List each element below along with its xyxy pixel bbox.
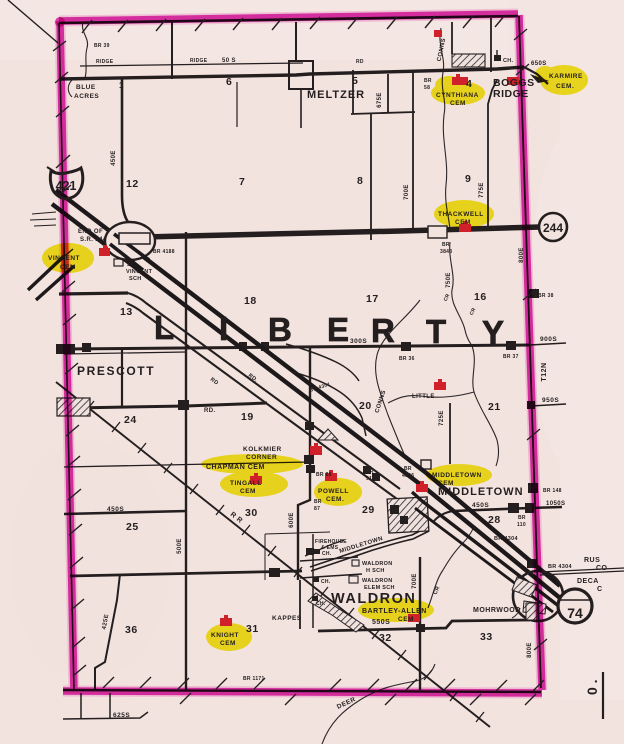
- svg-text:6: 6: [226, 76, 232, 88]
- svg-text:MIDDLETOWN: MIDDLETOWN: [432, 472, 482, 479]
- svg-text:CEM: CEM: [450, 100, 466, 107]
- svg-text:19: 19: [241, 411, 254, 423]
- svg-text:31: 31: [246, 623, 259, 635]
- svg-text:50 S: 50 S: [222, 58, 236, 64]
- svg-text:BR: BR: [404, 466, 412, 472]
- svg-text:8: 8: [357, 175, 363, 187]
- svg-text:300S: 300S: [350, 338, 367, 345]
- svg-text:800E: 800E: [527, 642, 533, 658]
- svg-text:BR 4304: BR 4304: [548, 564, 572, 570]
- svg-text:4306: 4306: [402, 473, 414, 479]
- svg-text:CEM.: CEM.: [326, 496, 344, 503]
- svg-text:THACKWELL: THACKWELL: [438, 211, 484, 218]
- svg-text:CH.: CH.: [316, 601, 326, 607]
- svg-text:CHAPMAN CEM: CHAPMAN CEM: [206, 464, 265, 471]
- svg-text:110: 110: [517, 522, 526, 528]
- svg-text:E: E: [327, 311, 349, 348]
- svg-text:WALDRON: WALDRON: [362, 578, 393, 584]
- svg-text:RIDGE: RIDGE: [493, 88, 529, 100]
- svg-text:RD: RD: [356, 59, 364, 65]
- svg-text:BR 148: BR 148: [543, 488, 562, 494]
- svg-text:WALDRON: WALDRON: [362, 561, 393, 567]
- svg-text:ST: ST: [127, 262, 135, 268]
- svg-text:29: 29: [362, 504, 375, 516]
- svg-text:CEM: CEM: [220, 640, 236, 647]
- svg-text:BR 4188: BR 4188: [153, 249, 175, 255]
- svg-text:700E: 700E: [412, 573, 418, 589]
- svg-text:550S: 550S: [372, 619, 390, 626]
- svg-text:87: 87: [314, 506, 320, 512]
- svg-text:25: 25: [126, 521, 139, 533]
- svg-text:CH.: CH.: [322, 551, 332, 557]
- svg-text:675E: 675E: [377, 92, 383, 108]
- svg-text:BR 37: BR 37: [503, 354, 519, 360]
- svg-text:725E: 725E: [439, 410, 445, 426]
- svg-text:30: 30: [245, 507, 258, 519]
- svg-text:450E: 450E: [111, 150, 117, 166]
- svg-text:0 .: 0 .: [584, 679, 600, 695]
- svg-text:BR 39: BR 39: [94, 43, 110, 49]
- svg-text:BR: BR: [314, 499, 322, 505]
- svg-text:600E: 600E: [289, 512, 295, 528]
- svg-text:CEM: CEM: [455, 219, 471, 226]
- svg-text:1050S: 1050S: [546, 501, 565, 507]
- svg-text:950S: 950S: [542, 397, 559, 404]
- svg-text:BR: BR: [518, 515, 526, 521]
- svg-text:POWELL: POWELL: [318, 488, 349, 495]
- svg-text:421: 421: [56, 179, 77, 193]
- svg-text:TINGALL: TINGALL: [230, 480, 262, 487]
- svg-text:BARTLEY-ALLEN: BARTLEY-ALLEN: [362, 608, 427, 615]
- svg-text:CH.: CH.: [321, 579, 331, 585]
- svg-text:KARMIRE: KARMIRE: [549, 73, 583, 80]
- svg-text:BR: BR: [366, 469, 374, 475]
- svg-text:74: 74: [567, 605, 583, 621]
- svg-text:21: 21: [488, 401, 501, 413]
- svg-text:Y: Y: [482, 314, 504, 351]
- svg-text:CEM: CEM: [398, 616, 414, 623]
- svg-text:16: 16: [474, 291, 487, 303]
- svg-text:MIDDLETOWN: MIDDLETOWN: [438, 486, 524, 498]
- svg-text:36: 36: [125, 624, 138, 636]
- svg-text:13: 13: [120, 306, 133, 318]
- svg-text:RD.: RD.: [204, 408, 216, 414]
- svg-text:CYNTHIANA: CYNTHIANA: [436, 92, 479, 99]
- svg-text:58: 58: [424, 85, 430, 91]
- svg-text:KNIGHT: KNIGHT: [211, 632, 239, 639]
- svg-text:VINCENT: VINCENT: [48, 255, 80, 262]
- svg-text:33: 33: [480, 631, 493, 643]
- svg-text:CH.: CH.: [503, 58, 514, 64]
- svg-text:BR: BR: [442, 242, 450, 248]
- svg-text:CEM: CEM: [60, 264, 76, 271]
- svg-text:B: B: [268, 311, 292, 348]
- svg-text:KOLKMIER: KOLKMIER: [243, 446, 282, 453]
- svg-text:MOHRWOOD: MOHRWOOD: [473, 607, 521, 614]
- svg-text:28: 28: [488, 514, 501, 526]
- svg-text:C: C: [597, 586, 603, 593]
- svg-text:625S: 625S: [113, 712, 130, 719]
- svg-text:DECA: DECA: [577, 578, 599, 585]
- svg-text:700E: 700E: [404, 184, 410, 200]
- svg-text:775E: 775E: [479, 182, 485, 198]
- svg-text:12: 12: [126, 178, 139, 190]
- svg-text:BR 38: BR 38: [538, 293, 554, 299]
- svg-text:LITTLE: LITTLE: [412, 394, 435, 400]
- svg-text:BLUE: BLUE: [76, 84, 96, 91]
- svg-text:SCH: SCH: [129, 276, 142, 282]
- svg-text:5: 5: [352, 75, 358, 87]
- svg-text:BR: BR: [424, 78, 432, 84]
- svg-text:20: 20: [359, 400, 372, 412]
- svg-text:BR 4304: BR 4304: [494, 536, 518, 542]
- svg-text:R: R: [371, 312, 395, 349]
- svg-text:32: 32: [379, 632, 392, 644]
- svg-text:9: 9: [465, 173, 471, 185]
- svg-text:L: L: [154, 309, 174, 346]
- svg-text:450S: 450S: [107, 506, 124, 513]
- svg-text:RIDGE: RIDGE: [96, 59, 114, 65]
- svg-text:MELTZER: MELTZER: [307, 89, 365, 101]
- svg-text:750E: 750E: [446, 272, 452, 288]
- svg-text:KAPPES: KAPPES: [272, 615, 302, 622]
- svg-text:BR 1171: BR 1171: [243, 676, 265, 682]
- svg-text:T12N: T12N: [541, 362, 548, 381]
- svg-text:91: 91: [366, 476, 372, 482]
- svg-text:244: 244: [543, 221, 563, 235]
- svg-text:PRESCOTT: PRESCOTT: [77, 364, 155, 378]
- svg-text:3843: 3843: [440, 249, 452, 255]
- svg-text:BR 88: BR 88: [316, 472, 332, 478]
- svg-text:650S: 650S: [531, 61, 547, 67]
- svg-text:BR 36: BR 36: [399, 356, 415, 362]
- svg-text:CEM.: CEM.: [556, 83, 574, 90]
- svg-text:CO: CO: [596, 565, 608, 572]
- svg-text:500E: 500E: [177, 538, 183, 554]
- svg-text:S.R. 244: S.R. 244: [80, 237, 107, 243]
- svg-text:4: 4: [466, 78, 472, 90]
- svg-text:WALDRON: WALDRON: [331, 591, 416, 607]
- svg-text:1: 1: [119, 81, 124, 90]
- svg-text:CORNER: CORNER: [246, 454, 277, 461]
- svg-text:900S: 900S: [540, 336, 557, 343]
- svg-text:800E: 800E: [519, 247, 525, 263]
- svg-text:17: 17: [366, 293, 379, 305]
- svg-text:ACRES: ACRES: [74, 93, 99, 100]
- svg-text:18: 18: [244, 295, 257, 307]
- svg-text:24: 24: [124, 414, 137, 426]
- svg-text:VINCENT: VINCENT: [126, 269, 153, 275]
- svg-text:T: T: [426, 313, 446, 350]
- svg-text:RIDGE: RIDGE: [190, 58, 208, 64]
- svg-text:I: I: [219, 310, 228, 347]
- svg-text:CEM: CEM: [240, 488, 256, 495]
- svg-text:END OF: END OF: [78, 229, 103, 235]
- svg-text:450S: 450S: [472, 502, 489, 509]
- svg-text:7: 7: [239, 176, 245, 188]
- svg-text:RUS: RUS: [584, 557, 600, 564]
- svg-text:H SCH: H SCH: [366, 568, 385, 574]
